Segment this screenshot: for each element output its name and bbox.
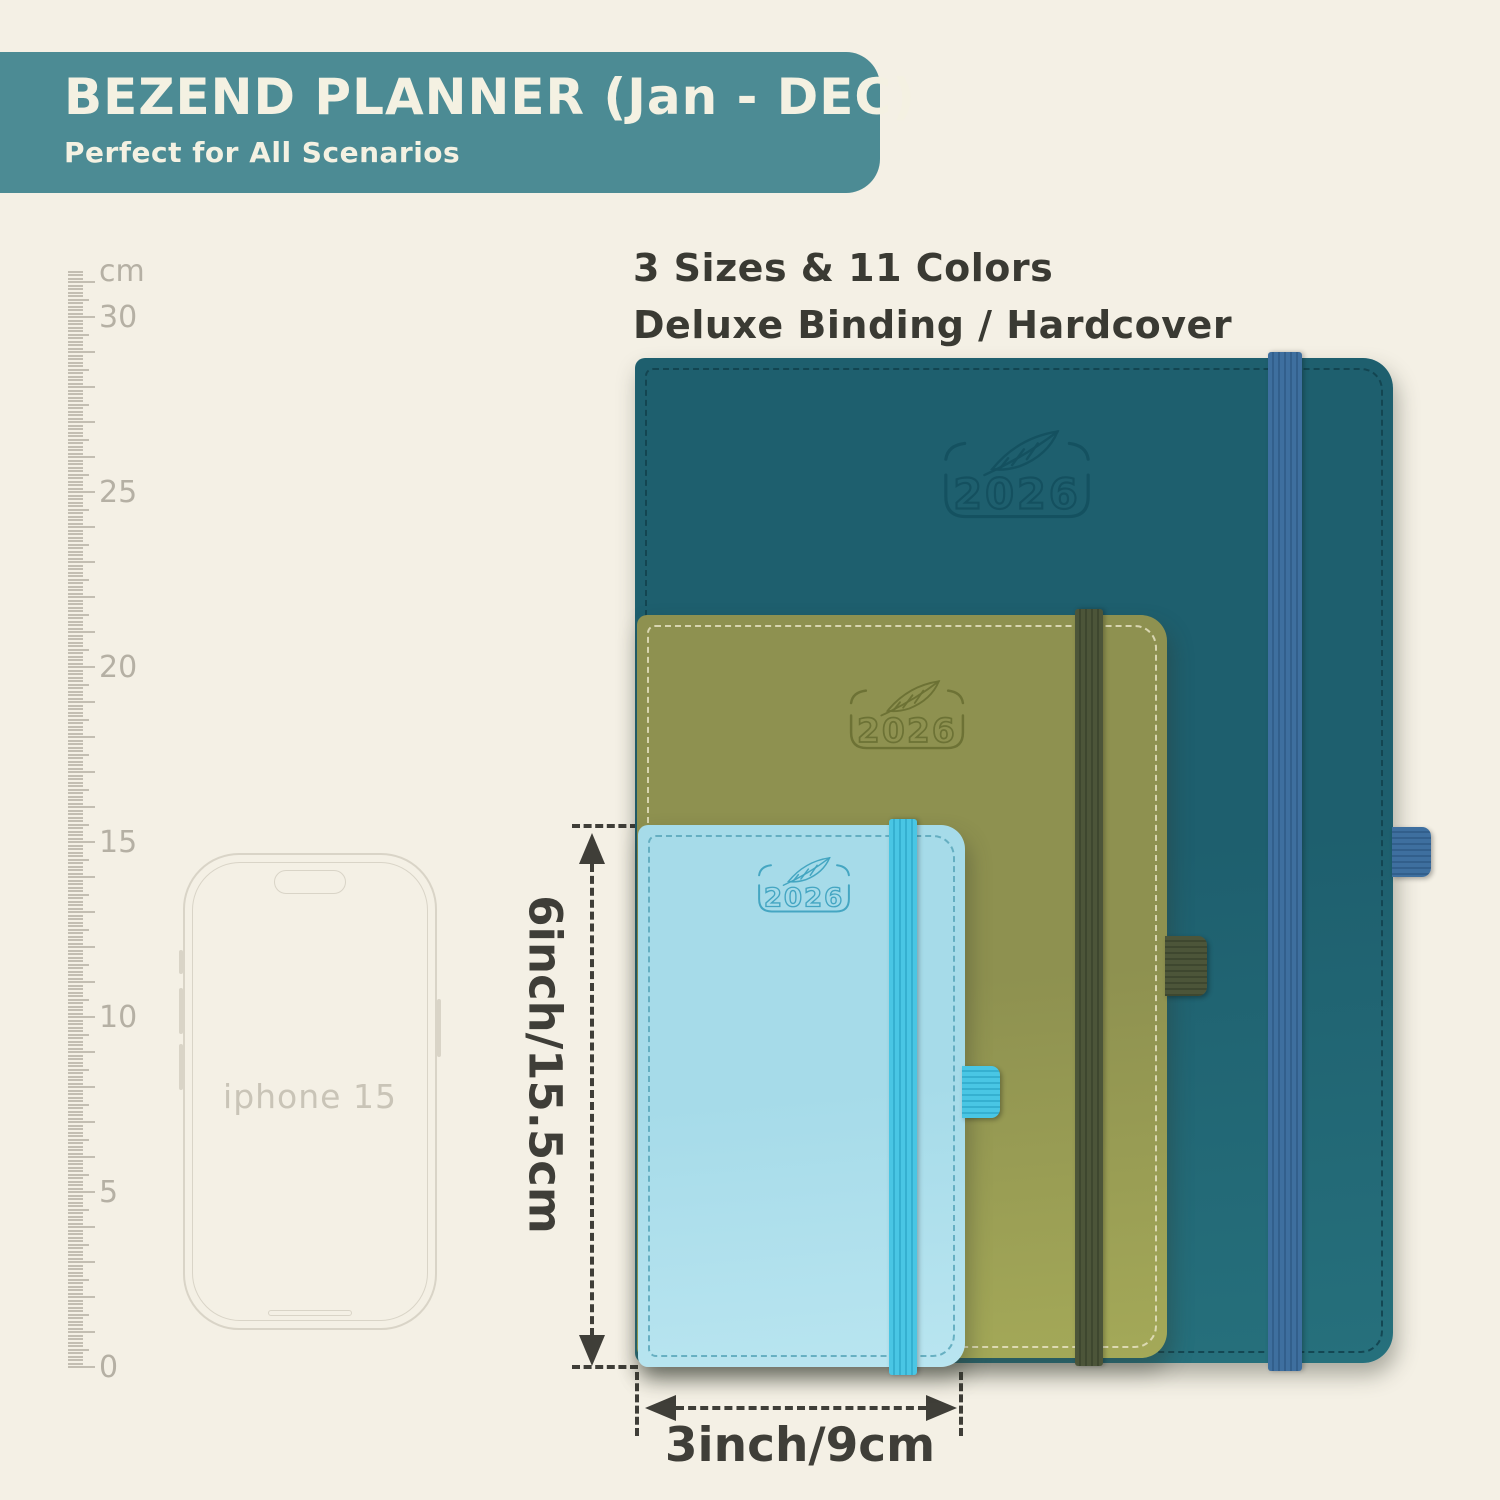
ruler-tick xyxy=(68,925,83,927)
ruler-tick xyxy=(68,904,83,906)
ruler-tick xyxy=(68,971,83,973)
ruler-tick xyxy=(68,596,95,598)
ruler-tick xyxy=(68,1338,83,1340)
ruler-tick xyxy=(68,1324,83,1326)
ruler-tick xyxy=(68,1181,83,1183)
ruler-tick xyxy=(68,1191,95,1193)
ruler-tick xyxy=(68,873,83,875)
ruler-tick xyxy=(68,939,83,941)
ruler-tick xyxy=(68,341,83,343)
ruler-tick xyxy=(68,922,83,924)
ruler-tick xyxy=(68,1244,89,1246)
ruler-tick xyxy=(68,768,83,770)
ruler-tick xyxy=(68,978,83,980)
ruler-tick xyxy=(68,1037,83,1039)
ruler-tick xyxy=(68,1086,95,1088)
ruler-tick xyxy=(68,974,83,976)
ruler-tick xyxy=(68,1300,83,1302)
ruler-tick xyxy=(68,1293,83,1295)
mute-switch xyxy=(179,950,183,974)
ruler-tick xyxy=(68,859,89,861)
ruler-tick xyxy=(68,397,83,399)
ruler-tick xyxy=(68,600,83,602)
ruler-tick xyxy=(68,589,83,591)
ruler-tick xyxy=(68,1002,83,1004)
ruler-tick xyxy=(68,740,83,742)
width-dimension-label: 3inch/9cm xyxy=(640,1418,960,1473)
ruler-tick xyxy=(68,1209,89,1211)
volume-down-button xyxy=(179,1044,183,1090)
ruler-tick xyxy=(68,876,95,878)
ruler-tick xyxy=(68,918,83,920)
ruler-tick xyxy=(68,348,83,350)
ruler-tick xyxy=(68,1090,83,1092)
ruler-tick xyxy=(68,1265,83,1267)
ruler-tick xyxy=(68,274,83,276)
ruler-tick xyxy=(68,635,83,637)
ruler-tick xyxy=(68,1146,83,1148)
ruler-tick xyxy=(68,1093,83,1095)
ruler-tick xyxy=(68,1198,83,1200)
height-dimension-line xyxy=(590,864,594,1336)
pen-loop xyxy=(1392,827,1431,877)
ruler-tick xyxy=(68,932,83,934)
ruler-number-15: 15 xyxy=(99,825,169,860)
arrowhead-up xyxy=(579,833,605,864)
ruler-tick xyxy=(68,477,83,479)
ruler-tick xyxy=(68,1125,83,1127)
ruler-tick xyxy=(68,1142,83,1144)
ruler-tick xyxy=(68,295,83,297)
ruler-tick xyxy=(68,1212,83,1214)
ruler-tick xyxy=(68,1114,83,1116)
ruler-tick xyxy=(68,883,83,885)
ruler-tick xyxy=(68,1177,83,1179)
ruler-tick xyxy=(68,551,83,553)
ruler-tick xyxy=(68,824,89,826)
feature-sizes-colors: 3 Sizes & 11 Colors xyxy=(633,240,1232,297)
ruler-tick xyxy=(68,1030,83,1032)
ruler-tick xyxy=(68,323,83,325)
ruler-tick xyxy=(68,1303,83,1305)
ruler-tick xyxy=(68,894,89,896)
ruler-tick xyxy=(68,694,83,696)
ruler-tick xyxy=(68,561,95,563)
ruler-tick xyxy=(68,533,83,535)
ruler-tick xyxy=(68,614,89,616)
ruler-tick xyxy=(68,334,89,336)
ruler-tick xyxy=(68,411,83,413)
ruler-tick xyxy=(68,642,83,644)
ruler-tick xyxy=(68,376,83,378)
ruler-tick xyxy=(68,1272,83,1274)
year-2026-emboss-logo: 2026 xyxy=(841,675,973,759)
ruler-tick xyxy=(68,743,83,745)
elastic-band xyxy=(889,819,917,1375)
ruler-tick xyxy=(68,1027,83,1029)
ruler-tick xyxy=(68,575,83,577)
ruler-tick xyxy=(68,862,83,864)
ruler-tick xyxy=(68,638,83,640)
ruler-tick xyxy=(68,841,95,843)
ruler-tick xyxy=(68,390,83,392)
ruler-tick xyxy=(68,607,83,609)
ruler-number-25: 25 xyxy=(99,475,169,510)
ruler-tick xyxy=(68,820,83,822)
width-dimension-line xyxy=(676,1406,926,1410)
ruler-tick xyxy=(68,439,89,441)
ruler-tick xyxy=(68,848,83,850)
ruler-tick xyxy=(68,1132,83,1134)
ruler-tick xyxy=(68,666,95,668)
ruler-tick xyxy=(68,1170,83,1172)
ruler-tick xyxy=(68,1331,95,1333)
ruler-tick xyxy=(68,929,89,931)
ruler-tick xyxy=(68,855,83,857)
feature-text: 3 Sizes & 11 Colors Deluxe Binding / Har… xyxy=(633,240,1232,354)
ruler-tick xyxy=(68,1328,83,1330)
ruler-tick xyxy=(68,911,95,913)
ruler-tick xyxy=(68,1160,83,1162)
ruler-tick xyxy=(68,663,83,665)
ruler-tick xyxy=(68,1065,83,1067)
ruler-tick xyxy=(68,715,83,717)
ruler-tick xyxy=(68,355,83,357)
ruler-tick xyxy=(68,624,83,626)
ruler-tick xyxy=(68,526,95,528)
ruler-unit-label: cm xyxy=(99,254,169,289)
feature-binding: Deluxe Binding / Hardcover xyxy=(633,297,1232,354)
dynamic-island xyxy=(274,870,346,894)
ruler-tick xyxy=(68,1153,83,1155)
ruler-tick xyxy=(68,327,83,329)
ruler-tick xyxy=(68,470,83,472)
ruler-tick xyxy=(68,736,95,738)
ruler-tick xyxy=(68,565,83,567)
ruler-tick xyxy=(68,1321,83,1323)
iphone-label: iphone 15 xyxy=(185,1077,435,1116)
ruler-tick xyxy=(68,435,83,437)
ruler-tick xyxy=(68,481,83,483)
ruler-tick xyxy=(68,845,83,847)
ruler-tick xyxy=(68,1072,83,1074)
ruler-tick xyxy=(68,558,83,560)
ruler-tick xyxy=(68,379,83,381)
ruler-tick xyxy=(68,1184,83,1186)
ruler-tick xyxy=(68,449,83,451)
ruler-tick xyxy=(68,757,83,759)
ruler-tick xyxy=(68,1097,83,1099)
extension-line-left xyxy=(635,1372,639,1436)
ruler-tick xyxy=(68,271,83,273)
ruler-tick xyxy=(68,761,83,763)
ruler-tick xyxy=(68,890,83,892)
ruler-tick xyxy=(68,1282,83,1284)
ruler-tick xyxy=(68,1174,89,1176)
ruler-tick xyxy=(68,1055,83,1057)
svg-text:2026: 2026 xyxy=(764,883,844,913)
ruler-tick xyxy=(68,1023,83,1025)
ruler-tick xyxy=(68,817,83,819)
ruler-tick xyxy=(68,915,83,917)
ruler-tick xyxy=(68,785,83,787)
ruler-tick xyxy=(68,446,83,448)
ruler-tick xyxy=(68,428,83,430)
ruler-tick xyxy=(68,747,83,749)
ruler-tick xyxy=(68,404,89,406)
ruler-tick xyxy=(68,302,83,304)
ruler-tick xyxy=(68,523,83,525)
speaker-slot xyxy=(268,1310,352,1316)
ruler-tick xyxy=(68,656,83,658)
ruler-tick xyxy=(68,1062,83,1064)
ruler-tick xyxy=(68,358,83,360)
ruler-tick xyxy=(68,362,83,364)
ruler-tick xyxy=(68,705,83,707)
ruler-tick xyxy=(68,946,95,948)
ruler-tick xyxy=(68,887,83,889)
ruler-tick xyxy=(68,1079,83,1081)
ruler-tick xyxy=(68,1044,83,1046)
ruler-tick xyxy=(68,386,95,388)
elastic-band xyxy=(1075,609,1103,1366)
ruler-tick xyxy=(68,519,83,521)
ruler-tick xyxy=(68,649,89,651)
ruler-tick xyxy=(68,418,83,420)
ruler-tick xyxy=(68,344,83,346)
ruler-tick xyxy=(68,691,83,693)
ruler-tick xyxy=(68,1219,83,1221)
ruler-tick xyxy=(68,659,83,661)
ruler-tick xyxy=(68,957,83,959)
ruler-tick xyxy=(68,414,83,416)
ruler-tick xyxy=(68,813,83,815)
ruler-tick xyxy=(68,1111,83,1113)
ruler-tick xyxy=(68,995,83,997)
ruler-tick xyxy=(68,869,83,871)
ruler-tick xyxy=(68,1156,95,1158)
ruler-tick xyxy=(68,460,83,462)
ruler-tick xyxy=(68,383,83,385)
ruler-tick xyxy=(68,831,83,833)
ruler-tick xyxy=(68,1195,83,1197)
ruler-tick xyxy=(68,967,83,969)
ruler-tick xyxy=(68,1240,83,1242)
ruler-tick xyxy=(68,1058,83,1060)
ruler-tick xyxy=(68,425,83,427)
ruler-tick xyxy=(68,586,83,588)
ruler-tick xyxy=(68,491,95,493)
ruler-tick xyxy=(68,684,89,686)
ruler-tick xyxy=(68,988,83,990)
ruler-tick xyxy=(68,645,83,647)
ruler-tick xyxy=(68,936,83,938)
ruler-tick xyxy=(68,505,83,507)
ruler-tick xyxy=(68,617,83,619)
ruler-tick xyxy=(68,782,83,784)
ruler-tick xyxy=(68,1167,83,1169)
ruler-tick xyxy=(68,796,83,798)
ruler-tick xyxy=(68,698,83,700)
product-infographic: BEZEND PLANNER (Jan - DEC) Perfect for A… xyxy=(0,0,1500,1500)
ruler-tick xyxy=(68,733,83,735)
ruler-tick xyxy=(68,964,89,966)
ruler-tick xyxy=(68,1034,89,1036)
ruler-tick xyxy=(68,687,83,689)
ruler-tick xyxy=(68,1352,83,1354)
ruler-tick xyxy=(68,1135,83,1137)
ruler-tick xyxy=(68,866,83,868)
volume-up-button xyxy=(179,988,183,1034)
ruler-tick xyxy=(68,593,83,595)
ruler-tick xyxy=(68,288,83,290)
ruler-tick xyxy=(68,306,83,308)
ruler-tick xyxy=(68,309,83,311)
ruler-tick xyxy=(68,621,83,623)
ruler-tick xyxy=(68,806,95,808)
ruler-tick xyxy=(68,502,83,504)
ruler-tick xyxy=(68,729,83,731)
ruler-tick xyxy=(68,719,89,721)
ruler-tick xyxy=(68,901,83,903)
ruler-tick xyxy=(68,985,83,987)
ruler-tick xyxy=(68,474,89,476)
ruler-tick xyxy=(68,1345,83,1347)
ruler-tick xyxy=(68,1048,83,1050)
ruler-tick xyxy=(68,880,83,882)
ruler-tick xyxy=(68,1076,83,1078)
ruler-tick xyxy=(68,488,83,490)
ruler-tick xyxy=(68,1205,83,1207)
ruler-tick xyxy=(68,498,83,500)
ruler-tick xyxy=(68,1289,83,1291)
ruler-tick xyxy=(68,670,83,672)
ruler-tick xyxy=(68,1254,83,1256)
ruler-tick xyxy=(68,467,83,469)
ruler-tick xyxy=(68,1349,89,1351)
ruler-tick xyxy=(68,1104,89,1106)
ruler-tick xyxy=(68,1356,83,1358)
ruler-tick xyxy=(68,708,83,710)
pen-loop xyxy=(962,1066,1000,1118)
ruler-number-20: 20 xyxy=(99,650,169,685)
ruler-tick xyxy=(68,365,83,367)
ruler-tick xyxy=(68,810,83,812)
ruler-tick xyxy=(68,400,83,402)
ruler-tick xyxy=(68,299,89,301)
ruler-tick xyxy=(68,547,83,549)
ruler-tick xyxy=(68,554,83,556)
ruler-tick xyxy=(68,453,83,455)
ruler-tick xyxy=(68,1226,95,1228)
ruler-tick xyxy=(68,764,83,766)
ruler-tick xyxy=(68,1128,83,1130)
extension-line-bottom xyxy=(572,1365,638,1369)
ruler-tick xyxy=(68,834,83,836)
ruler-tick xyxy=(68,516,83,518)
ruler-tick xyxy=(68,1363,83,1365)
ruler-tick xyxy=(68,1149,83,1151)
ruler-tick xyxy=(68,1261,95,1263)
ruler-tick xyxy=(68,908,83,910)
year-2026-emboss-logo: 2026 xyxy=(751,853,857,920)
ruler-tick xyxy=(68,1247,83,1249)
year-2026-emboss-logo: 2026 xyxy=(933,424,1101,530)
ruler-tick xyxy=(68,1286,83,1288)
ruler-tick xyxy=(68,1251,83,1253)
ruler-tick xyxy=(68,999,89,1001)
ruler-tick xyxy=(68,530,83,532)
ruler-tick xyxy=(68,313,83,315)
ruler-tick xyxy=(68,827,83,829)
iphone-outline: iphone 15 xyxy=(183,853,437,1330)
ruler-tick xyxy=(68,285,83,287)
ruler-tick xyxy=(68,512,83,514)
ruler-tick xyxy=(68,701,95,703)
ruler-tick xyxy=(68,1223,83,1225)
ruler-tick xyxy=(68,582,83,584)
ruler-tick xyxy=(68,789,89,791)
ruler-tick xyxy=(68,1121,95,1123)
ruler-tick xyxy=(68,337,83,339)
ruler-tick xyxy=(68,320,83,322)
ruler-tick xyxy=(68,1296,95,1298)
elastic-band xyxy=(1268,352,1302,1371)
ruler-tick xyxy=(68,652,83,654)
ruler-tick xyxy=(68,278,83,280)
ruler-tick xyxy=(68,960,83,962)
ruler-tick xyxy=(68,1310,83,1312)
ruler-tick xyxy=(68,1041,83,1043)
svg-text:2026: 2026 xyxy=(953,470,1080,519)
ruler-tick xyxy=(68,803,83,805)
ruler-tick xyxy=(68,1051,95,1053)
ruler-tick xyxy=(68,1268,83,1270)
ruler-tick xyxy=(68,1317,83,1319)
ruler-tick xyxy=(68,775,83,777)
ruler-tick xyxy=(68,750,83,752)
ruler-tick xyxy=(68,1009,83,1011)
ruler-tick xyxy=(68,1083,83,1085)
ruler-tick xyxy=(68,442,83,444)
ruler-tick xyxy=(68,610,83,612)
ruler-tick xyxy=(68,792,83,794)
ruler-tick xyxy=(68,1233,83,1235)
ruler-tick xyxy=(68,1230,83,1232)
ruler-tick xyxy=(68,631,95,633)
ruler-tick xyxy=(68,953,83,955)
ruler-tick xyxy=(68,1100,83,1102)
planner-small-blue: 2026 xyxy=(638,825,965,1367)
ruler-tick xyxy=(68,432,83,434)
ruler-tick xyxy=(68,943,83,945)
ruler-tick xyxy=(68,1342,83,1344)
pen-loop xyxy=(1165,936,1207,996)
ruler-tick xyxy=(68,1139,89,1141)
ruler-tick xyxy=(68,992,83,994)
ruler-tick xyxy=(68,897,83,899)
ruler-tick xyxy=(68,1163,83,1165)
svg-text:2026: 2026 xyxy=(857,712,957,750)
ruler-number-5: 5 xyxy=(99,1175,169,1210)
ruler-tick xyxy=(68,673,83,675)
ruler-tick xyxy=(68,677,83,679)
ruler-tick xyxy=(68,1069,89,1071)
ruler-tick xyxy=(68,463,83,465)
ruler-tick xyxy=(68,754,89,756)
ruler-tick xyxy=(68,572,83,574)
ruler-tick xyxy=(68,722,83,724)
